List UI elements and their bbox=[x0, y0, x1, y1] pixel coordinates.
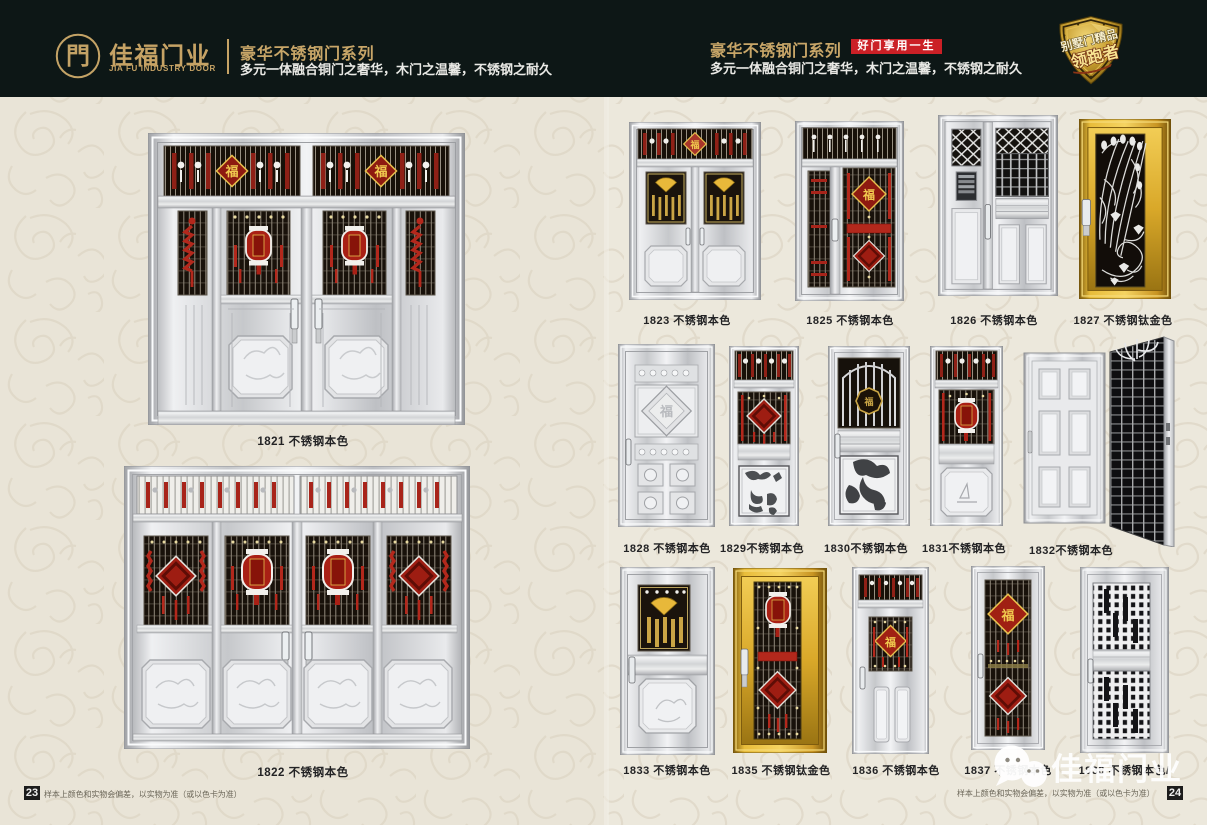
svg-text:福: 福 bbox=[884, 635, 896, 649]
svg-text:福: 福 bbox=[862, 187, 875, 202]
svg-text:福: 福 bbox=[1000, 608, 1014, 623]
svg-text:福: 福 bbox=[863, 396, 873, 407]
svg-text:福: 福 bbox=[224, 164, 238, 179]
svg-text:佳福门业: 佳福门业 bbox=[1051, 752, 1183, 787]
svg-text:福: 福 bbox=[659, 404, 673, 419]
svg-text:福: 福 bbox=[689, 139, 699, 150]
svg-text:福: 福 bbox=[373, 164, 387, 179]
svg-text:門: 門 bbox=[66, 43, 90, 70]
